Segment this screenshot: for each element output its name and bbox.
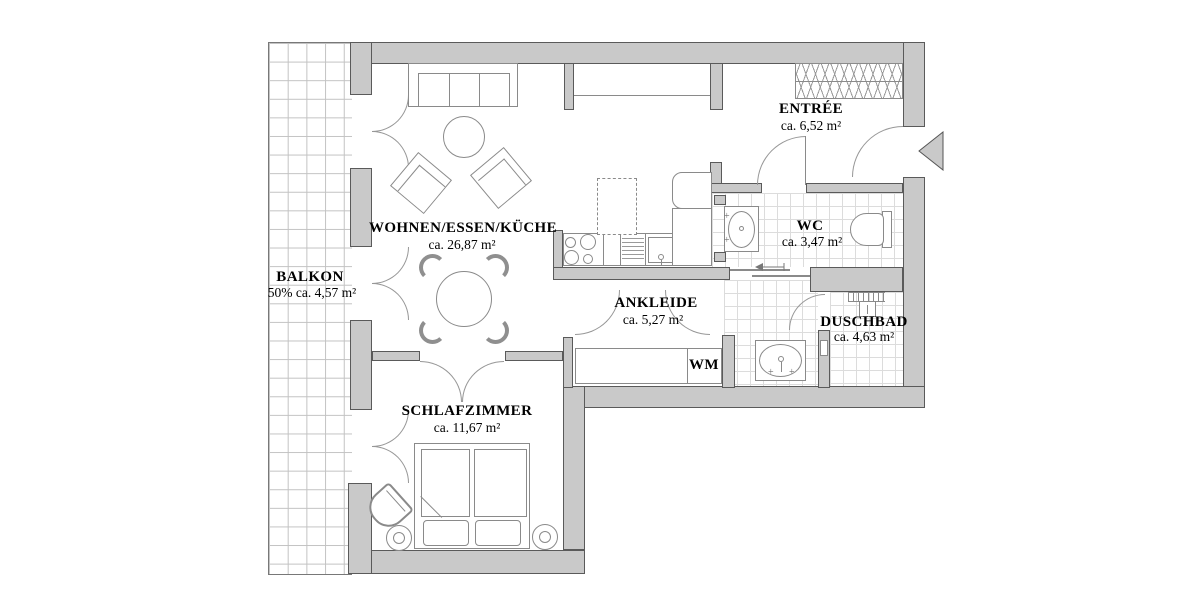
bath-faucet-stem xyxy=(781,362,782,372)
pillow-right xyxy=(475,520,521,546)
label-schlafzimmer-area: ca. 11,67 m² xyxy=(434,420,501,436)
ankleide-door-left-arc xyxy=(575,290,620,335)
mattress-right xyxy=(474,449,527,517)
shower-head-stem xyxy=(867,305,868,314)
entrance-arrow-icon xyxy=(918,131,945,171)
wc-door-leaf xyxy=(805,136,806,185)
toilet-bowl xyxy=(850,213,884,246)
dining-chair-bottom-left xyxy=(419,317,446,344)
label-schlafzimmer: SCHLAFZIMMER xyxy=(402,403,533,420)
wall-bedroom-right xyxy=(563,386,585,550)
entrance-door-arc xyxy=(852,126,903,177)
wall-right-lower xyxy=(903,177,925,408)
sliding-door-arrow-icon xyxy=(754,260,790,274)
wall-kitchen-ankleide xyxy=(553,267,730,280)
wall-window-pier-left xyxy=(564,63,574,110)
bedroom-double-door-arc-right xyxy=(462,361,504,402)
balcony-tiles xyxy=(268,42,352,575)
wall-top xyxy=(352,42,925,64)
wall-bottom-right-section xyxy=(563,386,925,408)
nightstand-right-inner xyxy=(539,531,551,543)
bedroom-balcony-door-arc-bottom xyxy=(372,446,409,483)
stove-burner-3 xyxy=(564,250,579,265)
pillow-left xyxy=(423,520,469,546)
dining-chair-top-right xyxy=(482,254,509,281)
duschbad-wall-niche xyxy=(820,340,828,356)
dining-chair-top-left xyxy=(419,254,446,281)
kitchen-divider-2 xyxy=(620,234,621,265)
label-wohnen-area: ca. 26,87 m² xyxy=(428,237,495,253)
wc-sink-tap-mark-bottom: + xyxy=(724,236,730,246)
kitchen-divider-1 xyxy=(603,234,604,265)
label-entree-area: ca. 6,52 m² xyxy=(781,118,841,134)
wall-ankleide-right-pier xyxy=(722,335,735,388)
wall-left-4 xyxy=(348,483,372,574)
entree-wardrobe xyxy=(795,63,903,99)
wall-wc-top-left xyxy=(710,183,762,193)
balcony-door1-arc-bottom xyxy=(372,131,409,168)
label-ankleide-area: ca. 5,27 m² xyxy=(623,312,683,328)
wall-bedroom-living-right xyxy=(505,351,563,361)
wc-sink-drain xyxy=(739,226,744,231)
wall-left-1 xyxy=(350,42,372,95)
balcony-door2-arc-bottom xyxy=(372,283,409,320)
wc-door-arc xyxy=(757,136,806,185)
balcony-door1-arc-top xyxy=(372,95,409,132)
label-entree: ENTRÉE xyxy=(779,101,843,118)
window-line xyxy=(574,95,710,96)
fridge-unit-top xyxy=(672,172,712,209)
kitchen-divider-3 xyxy=(645,234,646,265)
armchair-right xyxy=(470,147,532,209)
wall-corridor-duschbad xyxy=(818,330,830,388)
dining-table xyxy=(436,271,492,327)
ankleide-wardrobe-divider xyxy=(687,349,688,383)
wc-sink-tap-mark-top: + xyxy=(724,212,730,222)
mattress-left xyxy=(421,449,470,517)
label-balkon-area: 50% ca. 4,57 m² xyxy=(268,285,356,301)
bath-tap-mark-right: + xyxy=(789,368,795,378)
wall-wc-sink-pier-bottom xyxy=(714,252,726,262)
side-table xyxy=(443,116,485,158)
label-duschbad-area: ca. 4,63 m² xyxy=(834,329,894,345)
wall-bedroom-living-left xyxy=(372,351,420,361)
wall-wc-sink-pier-top xyxy=(714,195,726,205)
balcony-door2-arc-top xyxy=(372,247,409,284)
label-balkon: BALKON xyxy=(276,269,343,286)
sofa-cushions xyxy=(418,73,510,107)
stove-burner-2 xyxy=(580,234,596,250)
kitchen-faucet-stem xyxy=(661,260,662,266)
label-wc-area: ca. 3,47 m² xyxy=(782,234,842,250)
wall-left-3 xyxy=(350,320,372,410)
planned-cabinet-dashed xyxy=(597,178,637,235)
label-wohnen: WOHNEN/ESSEN/KÜCHE xyxy=(369,220,557,237)
fridge-unit-bottom xyxy=(672,208,712,266)
stove-burner-4 xyxy=(583,254,593,264)
wall-living-ankleide-lower xyxy=(563,337,573,388)
stove-burner-1 xyxy=(565,237,576,248)
wall-bedroom-bottom xyxy=(348,550,585,574)
wall-wc-top-right xyxy=(806,183,903,193)
wall-duschbad-top xyxy=(810,267,903,292)
bedroom-armchair-seat-line xyxy=(386,490,405,511)
wall-right-upper xyxy=(903,42,925,127)
wall-entree-pier xyxy=(710,63,723,110)
nightstand-left-inner xyxy=(393,532,405,544)
floor-plan: + + + + WOHNEN/ESSEN/KÜCHE ca. 26,87 m² … xyxy=(0,0,1200,600)
sliding-door-line-2 xyxy=(752,275,810,277)
label-wc: WC xyxy=(797,218,824,235)
entree-wardrobe-rail xyxy=(796,81,902,82)
armchair-left-seat xyxy=(398,165,446,213)
bedroom-double-door-arc-left xyxy=(420,361,462,402)
label-wm: WM xyxy=(689,357,719,374)
dining-chair-bottom-right xyxy=(482,317,509,344)
label-ankleide: ANKLEIDE xyxy=(614,295,697,312)
armchair-right-seat xyxy=(478,158,526,206)
dishwasher xyxy=(622,238,644,262)
bath-tap-mark-left: + xyxy=(768,368,774,378)
